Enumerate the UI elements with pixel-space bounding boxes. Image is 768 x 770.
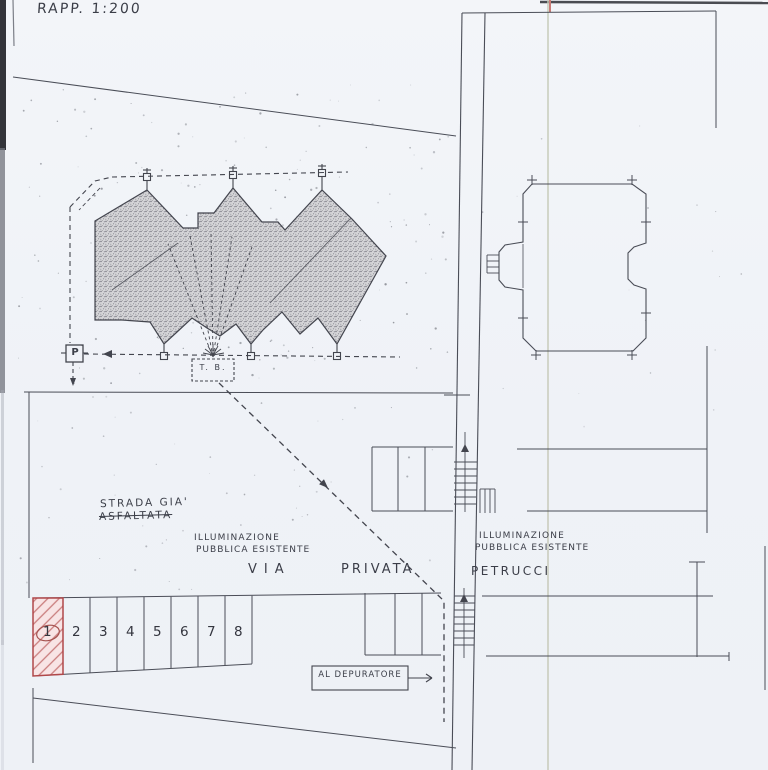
steps-icon <box>487 255 499 273</box>
garage-blocks <box>365 447 453 655</box>
main-building <box>95 188 386 344</box>
site-plan-drawing <box>0 0 768 770</box>
transformer-box-label: T. B. <box>193 364 233 373</box>
parking-space-number: 8 <box>234 624 243 640</box>
scale-label: RAPP. 1:200 <box>36 2 142 17</box>
stairs-icon <box>454 588 475 658</box>
column-ticks <box>518 175 651 360</box>
road-status-label-line1: STRADA GIA' <box>100 497 189 511</box>
lighting-left-label-line1: ILLUMINAZIONE <box>194 534 280 544</box>
road-status-label-line2: ASFALTATA <box>99 510 173 523</box>
street-name-privata: PRIVATA <box>341 563 414 577</box>
parking-space-number: 5 <box>153 624 162 640</box>
lighting-right-label-line1: ILLUMINAZIONE <box>479 532 565 542</box>
lamp-post-p-label: P <box>67 347 83 358</box>
lighting-left-label-line2: PUBBLICA ESISTENTE <box>196 546 310 556</box>
site-plan-sheet: RAPP. 1:200 STRADA GIA' ASFALTATA ILLUMI… <box>0 0 768 770</box>
lighting-right-label-line2: PUBBLICA ESISTENTE <box>475 544 589 554</box>
parking-space-number: 3 <box>99 624 108 640</box>
street-name-petrucci: PETRUCCI <box>471 565 551 578</box>
street-name-via: VIA <box>248 563 291 577</box>
parking-space-number: 2 <box>72 624 81 640</box>
depurator-label: AL DEPURATORE <box>314 671 406 680</box>
right-building <box>487 175 651 360</box>
stairs-icon <box>454 432 495 513</box>
parking-space-number: 1 <box>43 624 52 640</box>
parcel-boundary <box>13 77 456 598</box>
parking-space-number: 4 <box>126 624 135 640</box>
lamp-star-icon <box>203 344 224 355</box>
parking-space-number: 7 <box>207 624 216 640</box>
parking-space-number: 6 <box>180 624 189 640</box>
lamp-post-icon <box>143 164 326 181</box>
